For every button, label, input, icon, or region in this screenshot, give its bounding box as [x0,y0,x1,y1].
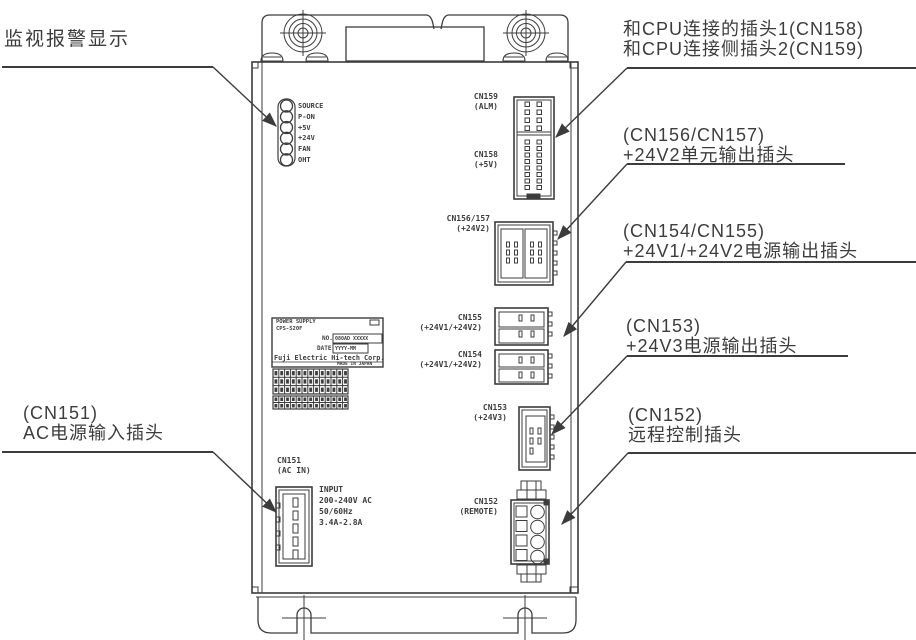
cn154-155-callout-line2: +24V1/+24V2电源输出插头 [623,241,858,261]
cn155-silkscreen-name: CN155 [400,313,482,323]
cpu-callout: 和CPU连接的插头1(CN158) 和CPU连接侧插头2(CN159) [623,19,864,59]
led-label-24v: +24V [298,134,315,142]
bottom-flange [258,595,576,640]
nameplate-date-label: DATE [317,345,331,352]
led-label-fan: FAN [298,145,311,153]
cn151-callout-line2: AC电源输入插头 [23,423,164,443]
cn159-silkscreen-sub: (ALM) [430,102,498,112]
cn159-silkscreen: CN159 (ALM) [430,92,498,112]
cn154-connector-drawing [495,350,552,384]
cn153-silkscreen-sub: (+24V3) [430,413,507,423]
top-slot [346,27,484,61]
cn156-157-silkscreen: CN156/157 (+24V2) [420,214,490,234]
cn154-silkscreen: CN154 (+24V1/+24V2) [400,350,482,370]
cn155-silkscreen: CN155 (+24V1/+24V2) [400,313,482,333]
cn155-silkscreen-sub: (+24V1/+24V2) [400,323,482,333]
cn151-callout-line1: (CN151) [23,403,164,423]
cn152-silkscreen-name: CN152 [420,497,498,507]
cn153-connector-drawing [519,407,554,470]
input-rating-line2: 200-240V AC [319,495,372,506]
cn151-silkscreen-name: CN151 [277,456,337,466]
nameplate-no-label: NO. [322,335,333,342]
cn153-silkscreen: CN153 (+24V3) [430,403,507,423]
cn152-silkscreen-sub: (REMOTE) [420,507,498,517]
monitor-alarm-callout: 监视报警显示 [4,30,130,50]
top-cap [262,15,568,61]
nameplate-title: POWER SUPPLY [276,319,316,325]
cn153-silkscreen-name: CN153 [430,403,507,413]
cn154-silkscreen-sub: (+24V1/+24V2) [400,360,482,370]
nameplate-company: Fuji Electric Hi-tech Corp. [274,354,385,362]
cn152-callout-line2: 远程控制插头 [628,425,742,445]
input-rating-line4: 3.4A-2.8A [319,517,372,528]
led-label-oht: OHT [298,156,311,164]
cn155-connector-drawing [495,308,552,345]
nameplate-no-value: 080AD XXXXX [335,336,368,342]
cn151-silkscreen-sub: (AC IN) [277,466,337,476]
cn152-connector-drawing [511,481,549,582]
cn152-callout-line1: (CN152) [628,405,742,425]
power-supply-diagram: 监视报警显示 和CPU连接的插头1(CN158) 和CPU连接侧插头2(CN15… [0,0,916,640]
cn156-157-callout-line1: (CN156/CN157) [623,125,795,145]
led-label-p-on: P-ON [298,113,315,121]
right-screw-icon [503,10,549,56]
cn151-callout: (CN151) AC电源输入插头 [23,403,164,443]
cn158-silkscreen-name: CN158 [430,150,498,160]
nameplate-origin: MADE IN JAPAN [337,362,372,367]
cn158-silkscreen: CN158 (+5V) [430,150,498,170]
cn159-silkscreen-name: CN159 [430,92,498,102]
nameplate-date-value: YYYY-MM [335,346,356,352]
led-label-source: SOURCE [298,102,323,110]
left-screw-icon [280,10,326,56]
cn152-silkscreen: CN152 (REMOTE) [420,497,498,517]
cn156-157-callout-line2: +24V2单元输出插头 [623,145,795,165]
cn156-157-callout: (CN156/CN157) +24V2单元输出插头 [623,125,795,165]
barcode [273,369,348,409]
cn154-silkscreen-name: CN154 [400,350,482,360]
nameplate-model: CPS-520F [276,326,303,332]
cn158-silkscreen-sub: (+5V) [430,160,498,170]
cn151-connector-drawing [276,487,312,566]
cpu-callout-line2: 和CPU连接侧插头2(CN159) [623,39,864,59]
cn153-callout-line2: +24V3电源输出插头 [626,336,798,356]
input-rating: INPUT 200-240V AC 50/60Hz 3.4A-2.8A [319,484,372,528]
cn152-callout: (CN152) 远程控制插头 [628,405,742,445]
cn156-157-connector-drawing [495,222,557,285]
cpu-callout-line1: 和CPU连接的插头1(CN158) [623,19,864,39]
cn159-cn158-connector-drawing [514,97,554,199]
cn151-silkscreen: CN151 (AC IN) [277,456,337,476]
input-rating-line1: INPUT [319,484,372,495]
input-rating-line3: 50/60Hz [319,506,372,517]
cn154-155-callout: (CN154/CN155) +24V1/+24V2电源输出插头 [623,221,858,261]
cn153-callout-line1: (CN153) [626,316,798,336]
led-label-5v: +5V [298,124,311,132]
cap-bumps [261,53,568,61]
cn154-155-callout-line1: (CN154/CN155) [623,221,858,241]
cn156-157-silkscreen-name: CN156/157 [420,214,490,224]
led-indicator-drawing [278,99,295,166]
cn153-callout: (CN153) +24V3电源输出插头 [626,316,798,356]
cn156-157-silkscreen-sub: (+24V2) [420,224,490,234]
